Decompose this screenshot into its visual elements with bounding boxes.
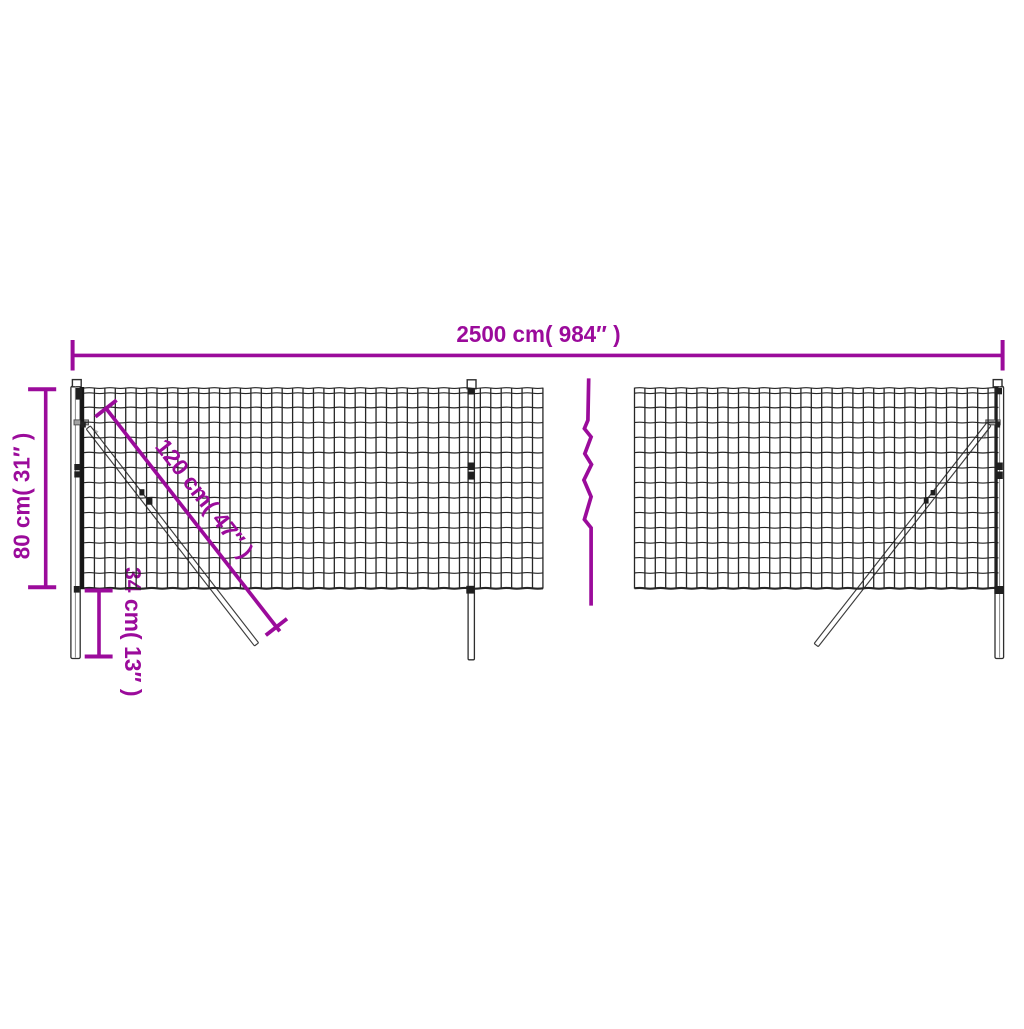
svg-text:2500 cm( 984″ ): 2500 cm( 984″ ) xyxy=(456,321,620,347)
svg-text:80 cm( 31″ ): 80 cm( 31″ ) xyxy=(9,433,35,560)
svg-text:34 cm( 13″ ): 34 cm( 13″ ) xyxy=(120,567,146,697)
